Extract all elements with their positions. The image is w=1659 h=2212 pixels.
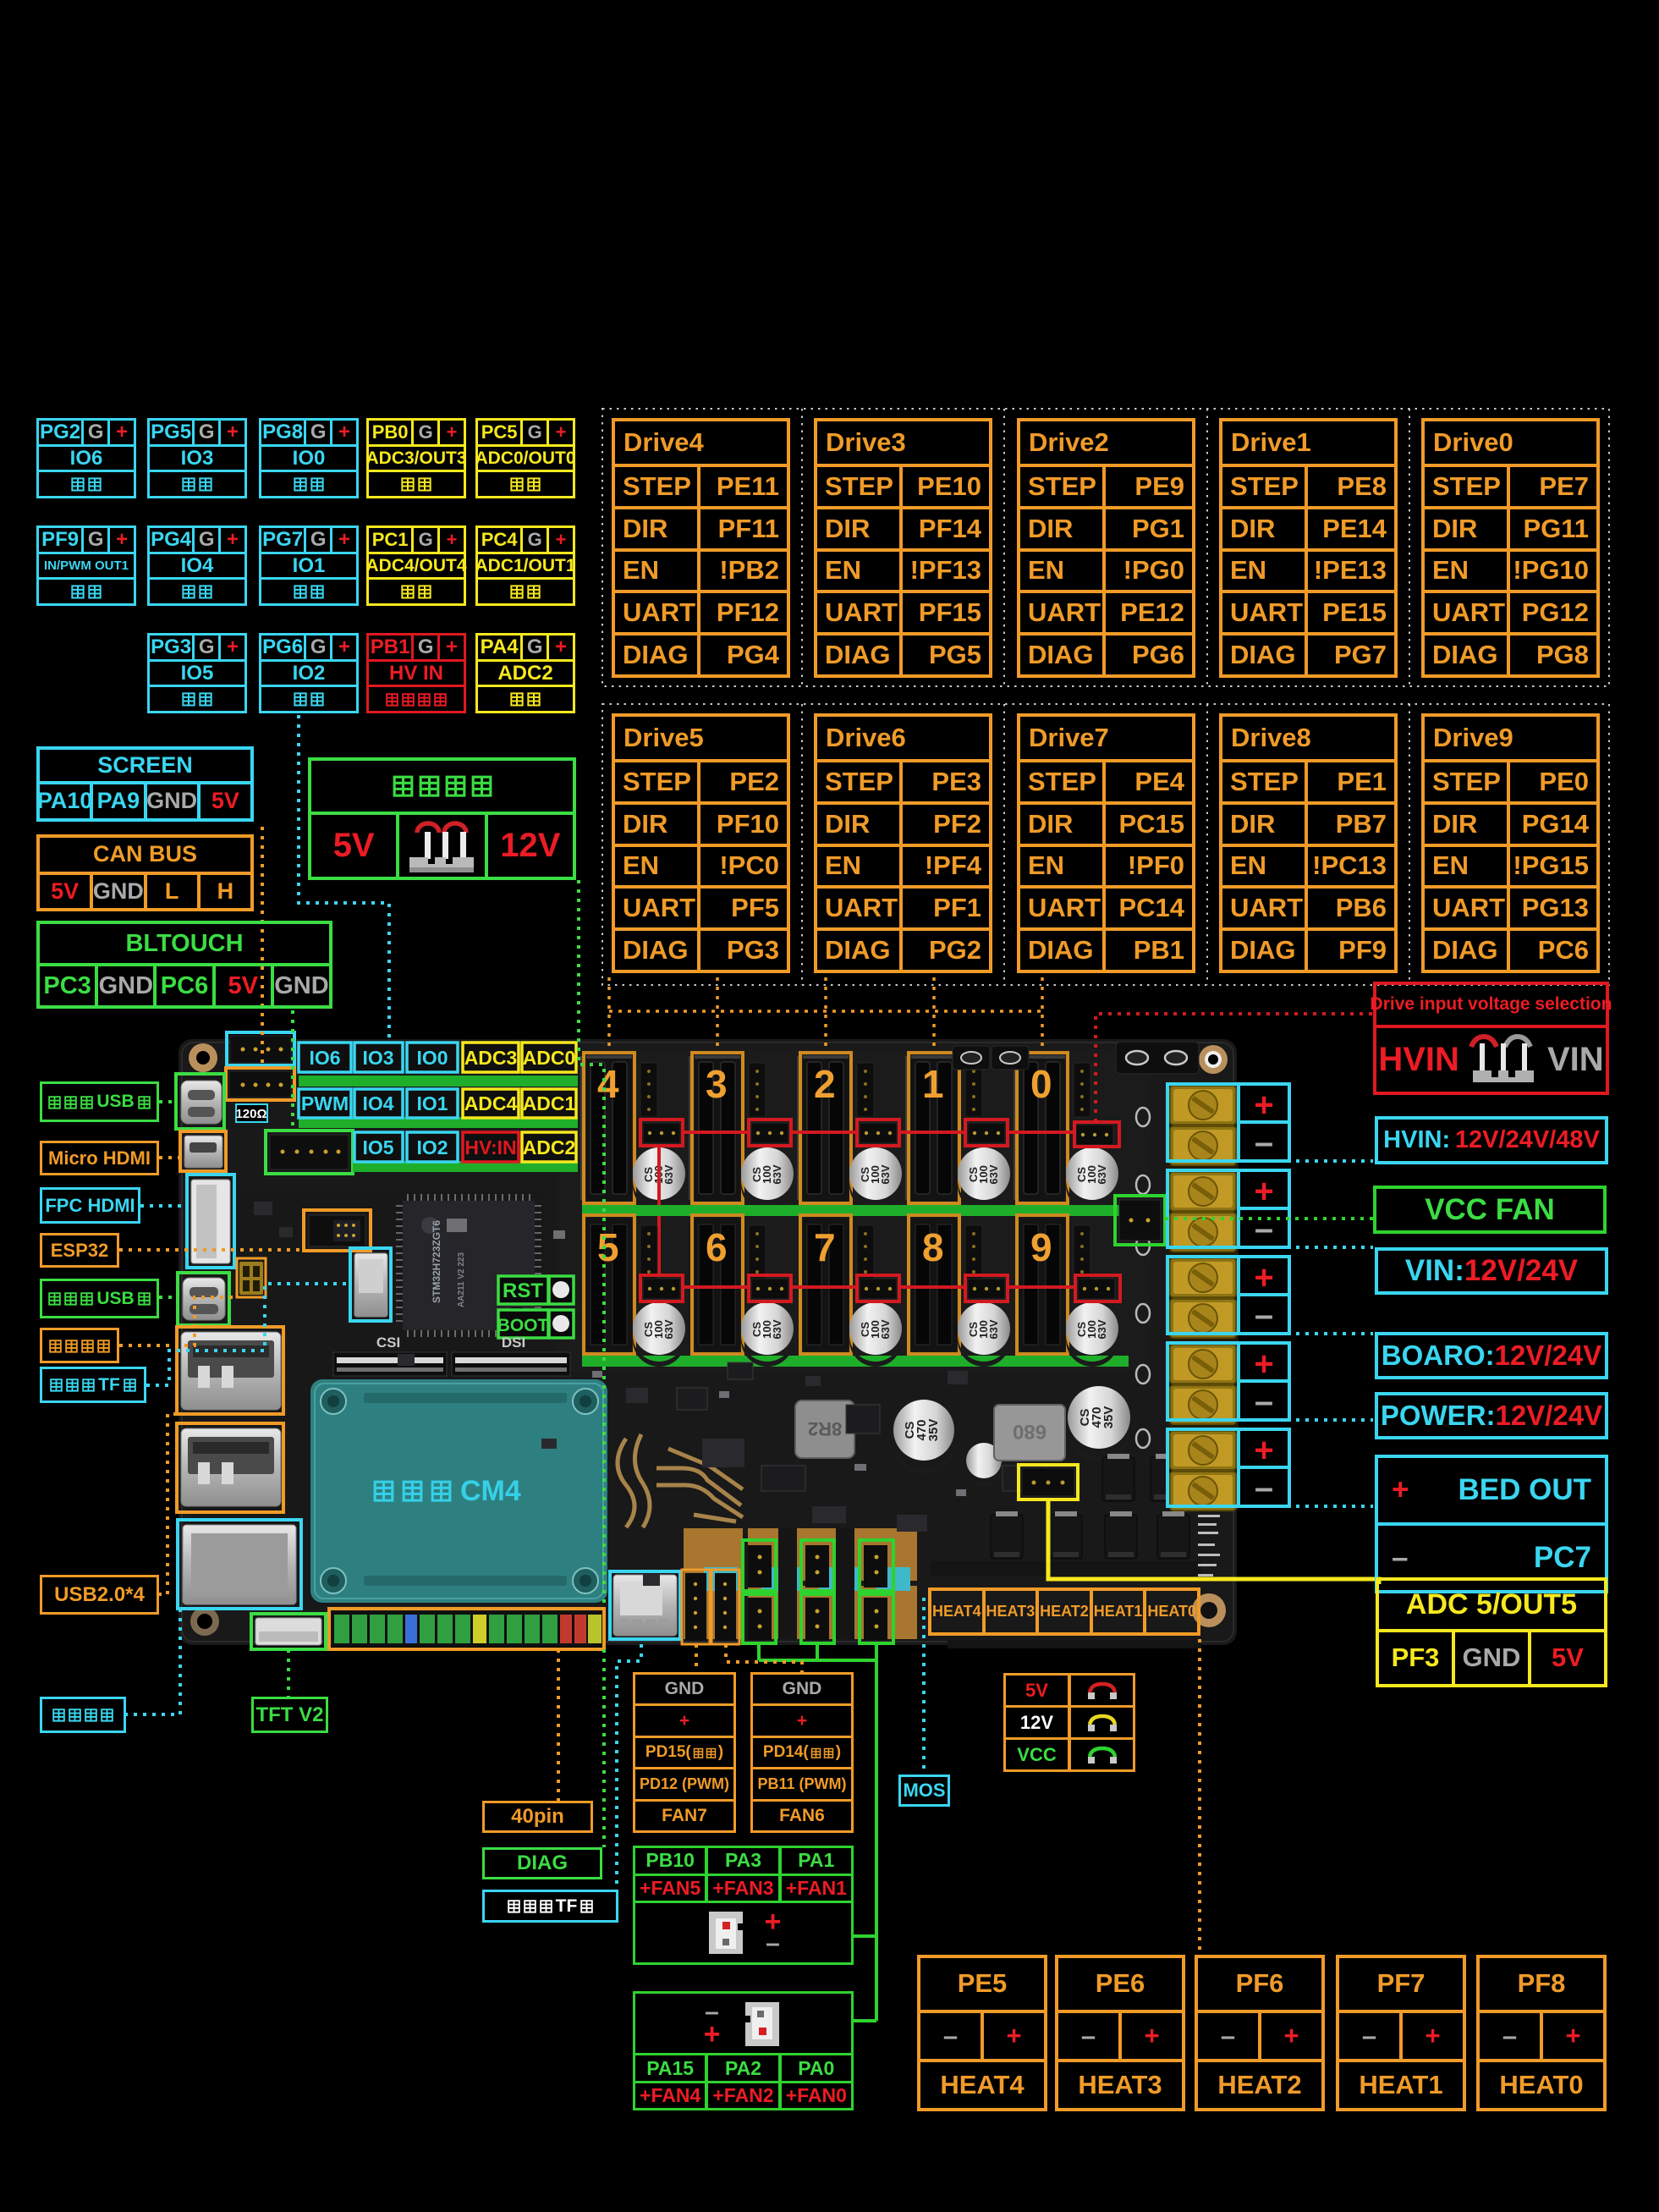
svg-text:+: + <box>1254 1432 1273 1469</box>
svg-text:IO2: IO2 <box>416 1136 448 1158</box>
svg-text:STM32H723ZGT6: STM32H723ZGT6 <box>431 1220 442 1303</box>
svg-text:5: 5 <box>597 1225 619 1269</box>
svg-text:CM4: CM4 <box>460 1475 521 1507</box>
svg-text:8R2: 8R2 <box>808 1418 842 1439</box>
svg-text:–: – <box>1255 1124 1273 1161</box>
svg-text:680: 680 <box>1013 1420 1046 1443</box>
svg-text:–: – <box>1255 1469 1273 1506</box>
svg-text:1: 1 <box>922 1062 944 1106</box>
svg-text:+: + <box>1254 1173 1273 1210</box>
svg-text:IO6: IO6 <box>309 1047 340 1069</box>
svg-text:ADC1: ADC1 <box>523 1092 576 1114</box>
svg-text:ADC4: ADC4 <box>464 1092 518 1114</box>
svg-text:0: 0 <box>1030 1062 1052 1106</box>
svg-text:DSI: DSI <box>502 1334 525 1351</box>
svg-text:–: – <box>1255 1296 1273 1334</box>
svg-text:CSI: CSI <box>376 1334 400 1351</box>
svg-text:+: + <box>1254 1259 1273 1296</box>
svg-text:4: 4 <box>597 1062 619 1106</box>
svg-text:+: + <box>1254 1087 1273 1124</box>
svg-text:IO0: IO0 <box>416 1047 448 1069</box>
svg-text:AA211 V2 223: AA211 V2 223 <box>457 1252 466 1307</box>
svg-text:3: 3 <box>706 1062 728 1106</box>
svg-text:ADC0: ADC0 <box>523 1047 576 1069</box>
svg-text:6: 6 <box>706 1225 728 1269</box>
svg-text:BOOT: BOOT <box>497 1316 549 1335</box>
svg-text:PWM: PWM <box>301 1092 349 1114</box>
svg-text:HV:IN: HV:IN <box>464 1136 516 1158</box>
svg-text:9: 9 <box>1030 1225 1052 1269</box>
svg-text:8: 8 <box>922 1225 944 1269</box>
svg-text:120Ω: 120Ω <box>235 1107 266 1121</box>
svg-text:IO5: IO5 <box>362 1136 393 1158</box>
svg-text:RST: RST <box>503 1279 543 1302</box>
svg-text:ADC2: ADC2 <box>523 1136 576 1158</box>
svg-text:ADC3: ADC3 <box>464 1047 518 1069</box>
svg-text:IO4: IO4 <box>362 1092 393 1114</box>
svg-text:+: + <box>1254 1345 1273 1383</box>
svg-text:–: – <box>1255 1383 1273 1420</box>
svg-text:IO1: IO1 <box>416 1092 448 1114</box>
svg-text:IO3: IO3 <box>362 1047 393 1069</box>
svg-text:2: 2 <box>814 1062 836 1106</box>
svg-text:35V: 35V <box>1101 1406 1116 1429</box>
svg-text:7: 7 <box>814 1225 836 1269</box>
svg-text:–: – <box>1255 1210 1273 1247</box>
svg-text:35V: 35V <box>926 1419 941 1442</box>
